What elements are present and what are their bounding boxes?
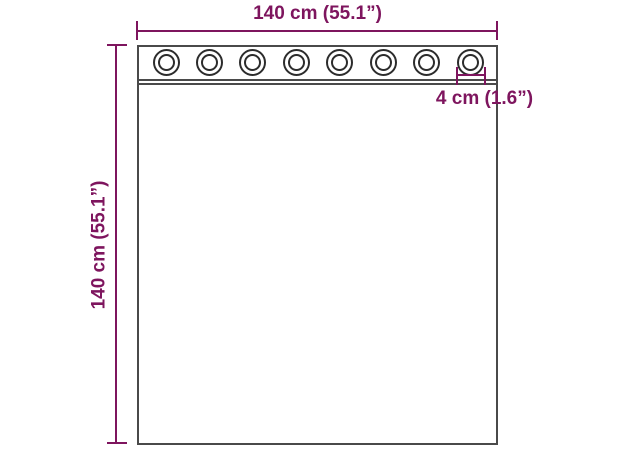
grommet <box>370 49 397 76</box>
grommet-inner-ring <box>418 54 435 71</box>
width-dimension-line <box>137 30 498 32</box>
grommet <box>153 49 180 76</box>
grommet-inner-ring <box>158 54 175 71</box>
grommet-inner-ring <box>375 54 392 71</box>
header-stitch-line-bottom <box>137 83 498 85</box>
grommet-inner-ring <box>462 54 479 71</box>
width-dimension-label: 140 cm (55.1”) <box>137 2 498 26</box>
grommet-dimension-label: 4 cm (1.6”) <box>424 87 545 111</box>
grommet <box>283 49 310 76</box>
grommet <box>457 49 484 76</box>
grommet-dimension-tick-left <box>456 67 458 85</box>
grommet <box>196 49 223 76</box>
grommet-inner-ring <box>331 54 348 71</box>
grommet-inner-ring <box>244 54 261 71</box>
grommet-inner-ring <box>288 54 305 71</box>
height-dimension-label: 140 cm (55.1”) <box>87 180 111 309</box>
header-stitch-line-top <box>137 79 498 81</box>
diagram-canvas: 140 cm (55.1”) 140 cm (55.1”) 4 cm (1.6”… <box>0 0 624 460</box>
grommet-dimension-tick-right <box>484 67 486 85</box>
grommet-dimension-line <box>456 74 486 76</box>
grommet <box>413 49 440 76</box>
grommet-inner-ring <box>201 54 218 71</box>
height-dimension-label-wrapper: 140 cm (55.1”) <box>81 45 117 444</box>
